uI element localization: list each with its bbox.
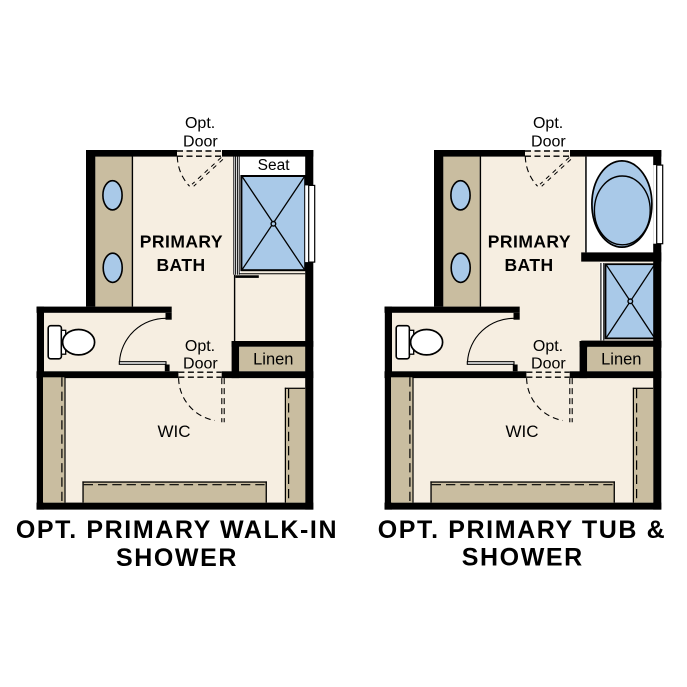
svg-text:PRIMARY: PRIMARY bbox=[140, 232, 223, 252]
svg-text:BATH: BATH bbox=[504, 255, 553, 275]
svg-text:PRIMARY: PRIMARY bbox=[488, 232, 571, 252]
svg-text:OPT. PRIMARY WALK-IN: OPT. PRIMARY WALK-IN bbox=[16, 516, 338, 544]
svg-text:Door: Door bbox=[183, 134, 218, 151]
svg-text:Opt.: Opt. bbox=[533, 338, 563, 355]
svg-text:SHOWER: SHOWER bbox=[116, 544, 238, 572]
svg-text:Door: Door bbox=[183, 356, 218, 373]
svg-text:Seat: Seat bbox=[258, 157, 291, 174]
svg-text:OPT. PRIMARY TUB &: OPT. PRIMARY TUB & bbox=[378, 516, 667, 544]
svg-text:Opt.: Opt. bbox=[185, 115, 215, 132]
svg-text:Linen: Linen bbox=[253, 351, 293, 369]
svg-text:Door: Door bbox=[531, 356, 566, 373]
svg-text:BATH: BATH bbox=[156, 255, 205, 275]
svg-text:Door: Door bbox=[531, 134, 566, 151]
svg-text:Linen: Linen bbox=[601, 351, 641, 369]
svg-text:Opt.: Opt. bbox=[185, 338, 215, 355]
svg-text:SHOWER: SHOWER bbox=[462, 544, 584, 572]
svg-text:Opt.: Opt. bbox=[533, 115, 563, 132]
svg-text:WIC: WIC bbox=[505, 422, 538, 441]
svg-text:WIC: WIC bbox=[157, 422, 190, 441]
